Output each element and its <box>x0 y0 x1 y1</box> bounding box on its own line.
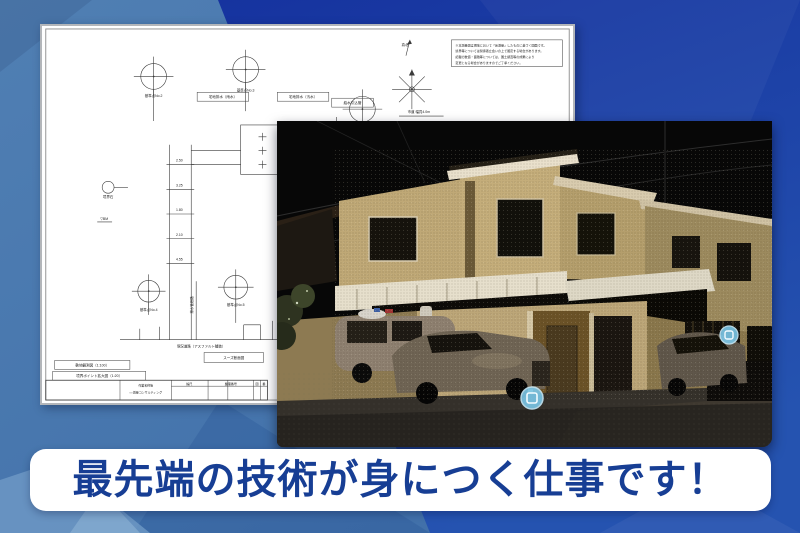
title-block-company: ○○測量コンサルティング <box>129 390 162 395</box>
annotation-text: 図 <box>256 382 259 386</box>
annotation-text: 宅地排水（雨水） <box>209 94 237 99</box>
annotation-text: 縮尺 <box>186 381 192 386</box>
pointcloud-noise <box>332 149 772 399</box>
annotation-text: 基準点No.4 <box>140 307 158 312</box>
title-block-name-label: 作業名称等 <box>138 383 153 388</box>
annotation-text: 市道 幅員4.0m <box>408 109 431 114</box>
annotation-text: 3.25 <box>176 183 183 187</box>
point-cloud-photo <box>277 121 772 447</box>
title-block: 作業名称等 ○○測量コンサルティング 縮尺整理番号図番 <box>46 380 268 400</box>
annotation-text: 排水管経路 <box>189 296 194 314</box>
annotation-text: ▽BM <box>100 217 108 221</box>
annotation-text: 境界石 <box>103 194 114 199</box>
annotation-text: 整理番号 <box>225 381 237 386</box>
annotation-text: 基準点No.2 <box>145 93 163 98</box>
annotation-text: 基準点No.5 <box>227 302 245 307</box>
annotation-text: ※本測量図は現地において「仮測量」したものに基づく図面です。 <box>455 42 546 47</box>
notes-box: ※本測量図は現地において「仮測量」したものに基づく図面です。境界等については関係… <box>451 40 562 67</box>
annotation-text: 2.10 <box>176 233 183 237</box>
annotation-text: 4.55 <box>176 258 183 262</box>
annotation-text: 2.50 <box>176 159 183 163</box>
annotation-text: 宅地排水（汚水） <box>289 94 317 99</box>
annotation-text: 敷地観測図（1:100） <box>75 362 109 367</box>
annotation-text: 記載の数値・面積等については、国土調査等の成果により <box>455 54 534 59</box>
point-cloud-scene <box>277 121 772 447</box>
annotation-text: 変更となる場合がありますのでご了承ください。 <box>455 60 522 65</box>
annotation-text: 1.80 <box>176 208 183 212</box>
annotation-text: 現況道路（アスファルト舗装） <box>177 344 225 349</box>
scan-position-marker-icon <box>521 387 543 409</box>
caption-banner: 最先端の技術が身につく仕事です！ <box>30 449 771 511</box>
scan-position-marker-icon <box>720 326 738 344</box>
annotation-text: スーズ断面図 <box>223 355 245 360</box>
pointcloud-noise <box>277 371 772 447</box>
annotation-text: 境界等については関係者立会いの上で確定する場合があります。 <box>455 48 543 53</box>
caption-text: 最先端の技術が身につく仕事です！ <box>73 460 729 500</box>
annotation-text: 番 <box>262 381 265 386</box>
annotation-text: 給水引込管 <box>344 100 362 105</box>
promo-image-canvas: ※本測量図は現地において「仮測量」したものに基づく図面です。境界等については関係… <box>0 0 800 533</box>
annotation-text: 境界ポイント拡大図（1:20） <box>76 373 122 378</box>
annotation-text: 基準点No.3 <box>237 87 255 92</box>
annotation-text: 真北 <box>402 42 409 47</box>
